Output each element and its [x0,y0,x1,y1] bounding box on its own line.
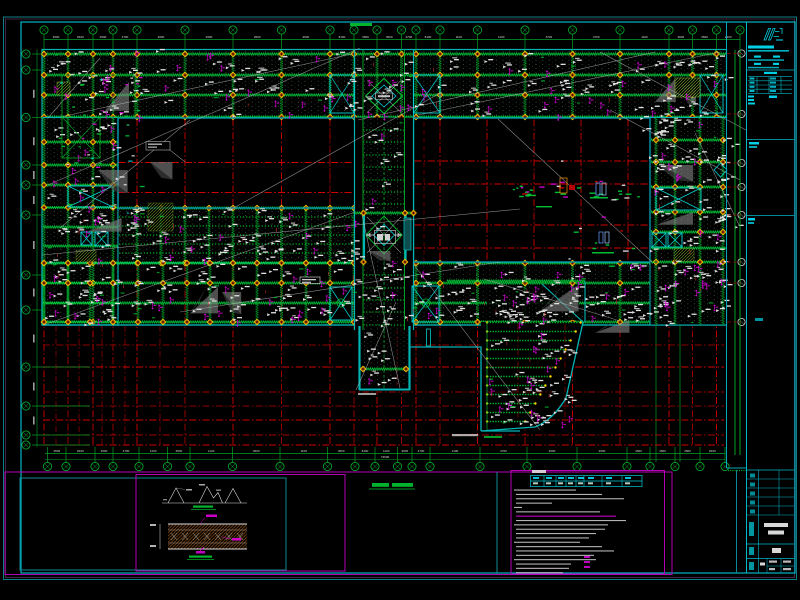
svg-text:1100: 1100 [150,449,157,453]
svg-text:3600: 3600 [401,449,408,453]
svg-text:2500: 2500 [254,35,261,39]
svg-text:8100: 8100 [339,35,346,39]
svg-text:8100: 8100 [425,35,432,39]
svg-text:3600: 3600 [158,35,165,39]
svg-text:4700: 4700 [405,35,412,39]
svg-text:4700: 4700 [123,449,130,453]
svg-text:4500: 4500 [175,449,182,453]
svg-text:4500: 4500 [684,449,691,453]
svg-text:4700: 4700 [545,35,552,39]
svg-text:1100: 1100 [383,449,390,453]
svg-text:4700: 4700 [122,35,129,39]
svg-text:4500: 4500 [338,449,345,453]
svg-text:1100: 1100 [498,35,505,39]
svg-text:3600: 3600 [362,35,369,39]
svg-text:4500: 4500 [549,449,556,453]
svg-text:4500: 4500 [253,449,260,453]
svg-text:8100: 8100 [362,449,369,453]
svg-text:3600: 3600 [53,35,60,39]
svg-text:4500: 4500 [386,35,393,39]
svg-text:1100: 1100 [452,449,459,453]
svg-text:1100: 1100 [641,35,648,39]
svg-text:1100: 1100 [301,449,308,453]
svg-text:74600: 74600 [381,455,390,459]
svg-text:4700: 4700 [593,35,600,39]
svg-text:4500: 4500 [701,35,708,39]
svg-text:4700: 4700 [500,449,507,453]
svg-text:4500: 4500 [635,449,642,453]
svg-text:4700: 4700 [418,449,425,453]
svg-text:2500: 2500 [725,35,732,39]
svg-text:1100: 1100 [456,35,463,39]
svg-text:4500: 4500 [53,449,60,453]
svg-text:8100: 8100 [77,35,84,39]
svg-text:2500: 2500 [206,35,213,39]
svg-text:4500: 4500 [599,449,606,453]
svg-text:1100: 1100 [208,449,215,453]
svg-text:3600: 3600 [302,35,309,39]
svg-text:3600: 3600 [677,35,684,39]
svg-text:4500: 4500 [659,449,666,453]
svg-text:4500: 4500 [101,449,108,453]
svg-text:8100: 8100 [77,449,84,453]
svg-text:2500: 2500 [100,35,107,39]
svg-text:8100: 8100 [709,449,716,453]
